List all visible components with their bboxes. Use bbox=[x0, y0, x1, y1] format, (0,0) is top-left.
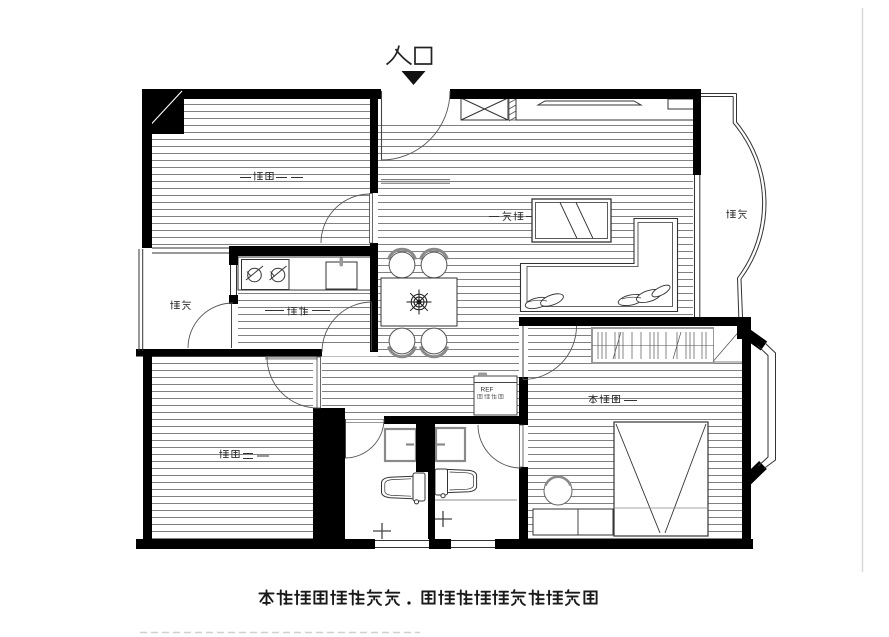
svg-text:REF: REF bbox=[481, 387, 494, 394]
